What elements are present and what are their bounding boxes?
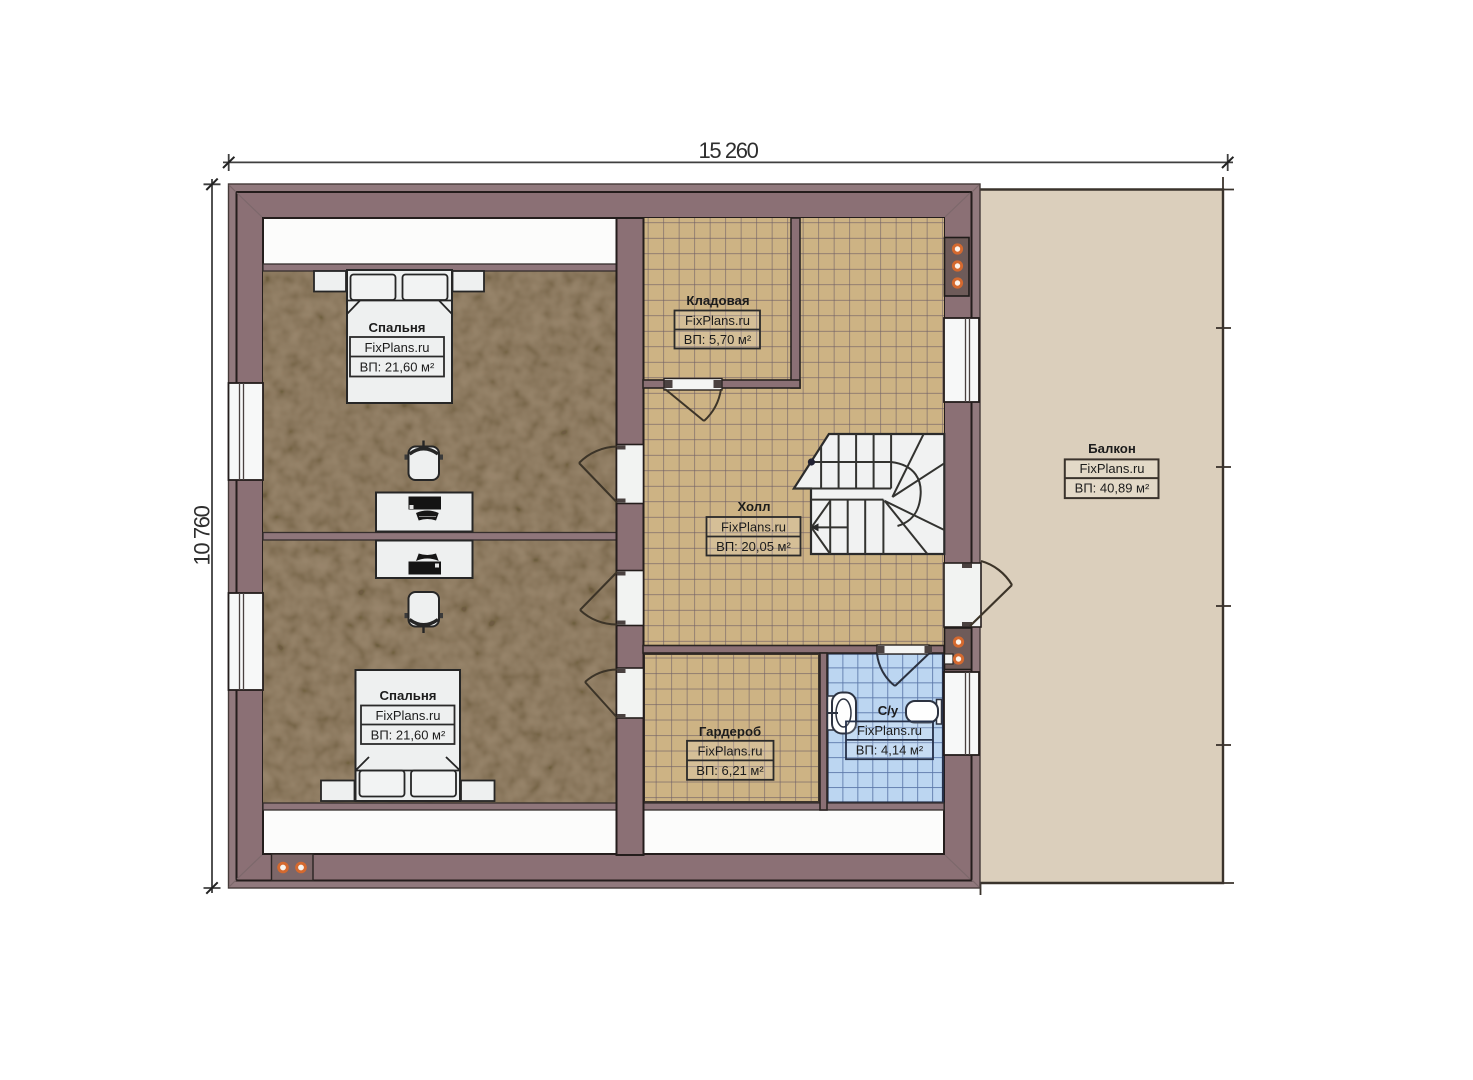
svg-text:ВП: 40,89 м²: ВП: 40,89 м² bbox=[1075, 481, 1150, 496]
svg-text:ВП: 21,60 м²: ВП: 21,60 м² bbox=[360, 360, 435, 375]
svg-text:ВП: 6,21 м²: ВП: 6,21 м² bbox=[696, 763, 764, 778]
svg-text:15 260: 15 260 bbox=[699, 138, 759, 163]
svg-text:10 760: 10 760 bbox=[190, 505, 215, 565]
svg-text:Холл: Холл bbox=[737, 499, 770, 514]
svg-text:Балкон: Балкон bbox=[1088, 441, 1136, 456]
svg-text:ВП: 21,60 м²: ВП: 21,60 м² bbox=[371, 728, 446, 743]
svg-text:FixPlans.ru: FixPlans.ru bbox=[685, 313, 750, 328]
svg-text:FixPlans.ru: FixPlans.ru bbox=[364, 340, 429, 355]
svg-text:FixPlans.ru: FixPlans.ru bbox=[375, 708, 440, 723]
svg-text:ВП: 5,70 м²: ВП: 5,70 м² bbox=[684, 332, 752, 347]
svg-text:Гардероб: Гардероб bbox=[699, 724, 761, 739]
svg-text:ВП: 20,05 м²: ВП: 20,05 м² bbox=[716, 539, 791, 554]
svg-text:FixPlans.ru: FixPlans.ru bbox=[697, 744, 762, 759]
svg-text:FixPlans.ru: FixPlans.ru bbox=[857, 723, 922, 738]
svg-text:FixPlans.ru: FixPlans.ru bbox=[721, 520, 786, 535]
svg-text:Спальня: Спальня bbox=[369, 320, 426, 335]
svg-text:Спальня: Спальня bbox=[380, 688, 437, 703]
svg-text:С/у: С/у bbox=[878, 703, 899, 718]
svg-text:FixPlans.ru: FixPlans.ru bbox=[1079, 461, 1144, 476]
svg-text:ВП: 4,14 м²: ВП: 4,14 м² bbox=[856, 743, 924, 758]
svg-text:Кладовая: Кладовая bbox=[686, 293, 749, 308]
